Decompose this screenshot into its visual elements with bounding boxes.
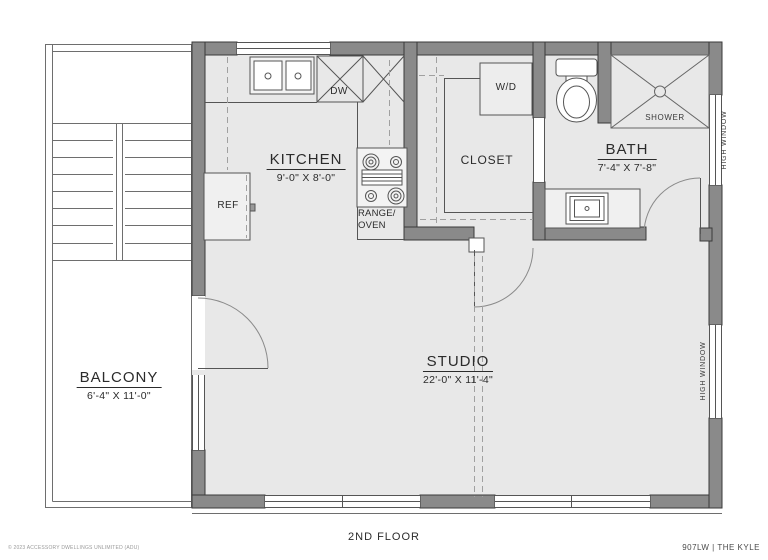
toilet: [556, 59, 597, 122]
bath-name: BATH: [598, 141, 657, 160]
floor-plan: KITCHEN 9'-0" X 8'-0" CLOSET BATH 7'-4" …: [0, 0, 768, 560]
plan-code: 907LW | THE KYLE: [682, 543, 760, 552]
refrigerator-handle: [250, 204, 255, 211]
deck-outline-inner: [53, 45, 193, 502]
refrigerator-label: REF: [217, 200, 238, 211]
toilet-bowl: [557, 78, 597, 122]
bath-label: BATH 7'-4" X 7'-8": [598, 141, 657, 174]
vanity-sink-outer: [566, 193, 608, 224]
high-window-label-lower: HIGH WINDOW: [700, 331, 712, 411]
studio-dims: 22'-0" X 11'-4": [423, 374, 493, 386]
wall-bath-door-jamb: [700, 228, 712, 241]
balcony-label: BALCONY 6'-4" X 11'-0": [77, 369, 162, 402]
wall-top-main: [330, 42, 722, 55]
range-oven-label: RANGE/ OVEN: [358, 208, 396, 232]
closet-name: CLOSET: [458, 153, 517, 168]
wall-right-lower: [709, 418, 722, 508]
range-label-line2: OVEN: [358, 220, 396, 232]
studio-name: STUDIO: [423, 353, 493, 372]
wall-right-upper: [709, 42, 722, 95]
floor-plan-drawing: [0, 0, 768, 560]
kitchen-sink-basin-left: [254, 61, 282, 90]
floor-title: 2ND FLOOR: [348, 531, 420, 543]
wall-closet-right-lower: [533, 182, 545, 240]
wall-bottom-mid: [420, 495, 495, 508]
shower-label: SHOWER: [645, 113, 685, 122]
high-window-label-upper: HIGH WINDOW: [721, 100, 733, 180]
closet-label: CLOSET: [458, 153, 517, 168]
bath-dims: 7'-4" X 7'-8": [598, 162, 657, 174]
wall-bath-bottom: [533, 227, 646, 240]
kitchen-label: KITCHEN 9'-0" X 8'-0": [267, 151, 346, 184]
wall-bottom-left: [192, 495, 265, 508]
dishwasher-label: DW: [330, 86, 347, 97]
stair-rail: [117, 124, 123, 261]
closet-door-jamb: [469, 238, 484, 252]
wall-left-upper: [192, 42, 205, 296]
range-label-line1: RANGE/: [358, 208, 396, 220]
toilet-tank: [556, 59, 597, 76]
kitchen-name: KITCHEN: [267, 151, 346, 170]
vanity: [545, 189, 640, 228]
deck-outline-outer: [46, 45, 192, 508]
wall-right-mid: [709, 185, 722, 325]
kitchen-sink-basin-right: [286, 61, 311, 90]
copyright-note: © 2023 ACCESSORY DWELLINGS UNLIMITED (AD…: [8, 545, 139, 551]
washer-dryer-label: W/D: [496, 82, 517, 93]
wall-closet-bottom: [404, 227, 474, 240]
kitchen-dims: 9'-0" X 8'-0": [267, 172, 346, 184]
shower-drain: [655, 86, 666, 97]
balcony-door-opening: [192, 296, 205, 370]
wall-closet-right-upper: [533, 42, 545, 118]
studio-label: STUDIO 22'-0" X 11'-4": [423, 353, 493, 386]
wall-toilet-shower-divider: [598, 42, 611, 123]
balcony-dims: 6'-4" X 11'-0": [77, 390, 162, 402]
closet-cased-opening: [533, 118, 545, 182]
balcony-name: BALCONY: [77, 369, 162, 388]
